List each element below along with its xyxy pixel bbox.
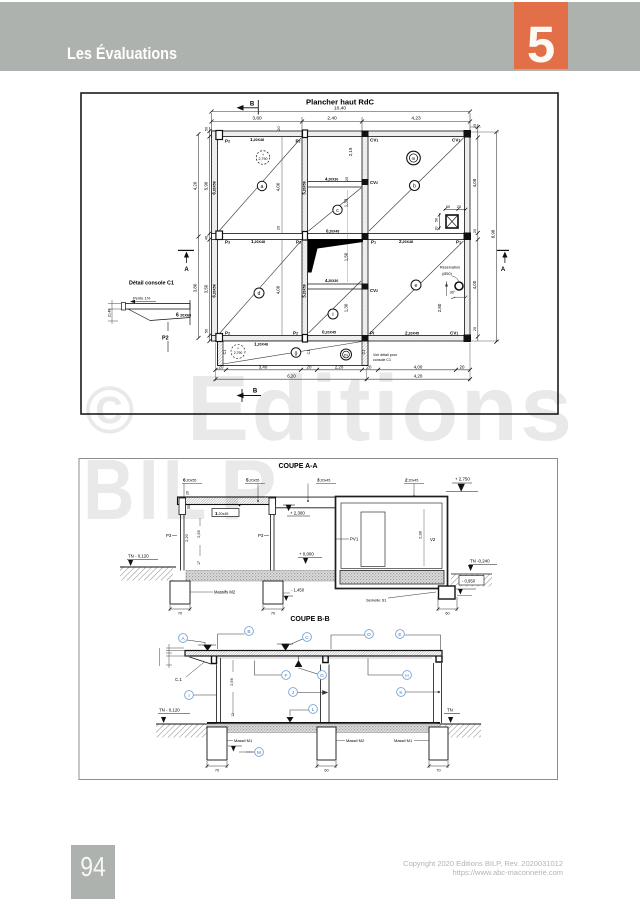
svg-text:3.20x45: 3.20x45: [317, 478, 330, 483]
svg-text:70: 70: [215, 769, 219, 773]
svg-text:20: 20: [186, 491, 190, 495]
svg-text:TN - 0,120: TN - 0,120: [128, 554, 149, 559]
svg-text:+ 0,000: + 0,000: [299, 552, 314, 557]
svg-text:Semelle S1: Semelle S1: [366, 598, 387, 603]
svg-text:C: C: [305, 635, 309, 641]
svg-text:G: G: [320, 673, 324, 679]
svg-text:I: I: [188, 693, 189, 699]
svg-text:P3: P3: [166, 533, 172, 538]
svg-text:70: 70: [178, 612, 182, 616]
svg-text:C.1: C.1: [175, 677, 182, 682]
svg-text:+ 2,300: + 2,300: [290, 511, 305, 516]
svg-text:60: 60: [445, 612, 449, 616]
svg-text:L: L: [312, 707, 315, 713]
svg-text:2.20x45: 2.20x45: [405, 478, 418, 483]
svg-text:PV1: PV1: [350, 537, 359, 542]
svg-text:TN - 0,120: TN - 0,120: [159, 708, 180, 713]
svg-text:D: D: [367, 632, 371, 638]
svg-text:1.20x45: 1.20x45: [215, 511, 228, 516]
svg-text:Massif M1: Massif M1: [394, 738, 413, 743]
svg-text:17: 17: [197, 561, 201, 565]
svg-text:F: F: [285, 673, 288, 679]
svg-text:E: E: [398, 632, 401, 638]
svg-text:Massifs M2: Massifs M2: [214, 590, 236, 595]
svg-text:M: M: [257, 750, 261, 756]
svg-text:Massif M1: Massif M1: [234, 738, 253, 743]
svg-text:+ 2,750: + 2,750: [455, 477, 470, 482]
svg-text:2,38: 2,38: [418, 530, 423, 539]
svg-text:70: 70: [271, 612, 275, 616]
svg-text:70: 70: [436, 769, 440, 773]
svg-text:- 0,950: - 0,950: [462, 579, 476, 584]
svg-text:5.20x55: 5.20x55: [246, 478, 259, 483]
svg-text:B: B: [247, 629, 250, 635]
svg-text:TN -0,240: TN -0,240: [470, 559, 490, 564]
svg-text:12: 12: [231, 713, 235, 717]
svg-text:60: 60: [324, 769, 328, 773]
svg-text:- 1,450: - 1,450: [291, 588, 305, 593]
svg-text:2,56: 2,56: [229, 677, 234, 686]
svg-text:V2: V2: [430, 537, 436, 542]
svg-text:6.20x55: 6.20x55: [183, 478, 196, 483]
svg-text:55: 55: [187, 505, 191, 509]
svg-text:COUPE A-A: COUPE A-A: [278, 463, 317, 470]
svg-text:Massif M2: Massif M2: [346, 738, 365, 743]
svg-text:2,55: 2,55: [196, 529, 201, 538]
svg-text:TN: TN: [447, 708, 453, 713]
svg-text:COUPE B-B: COUPE B-B: [290, 616, 329, 623]
svg-text:P3: P3: [258, 533, 264, 538]
svg-text:H: H: [405, 673, 409, 679]
svg-text:2,20: 2,20: [185, 534, 189, 541]
